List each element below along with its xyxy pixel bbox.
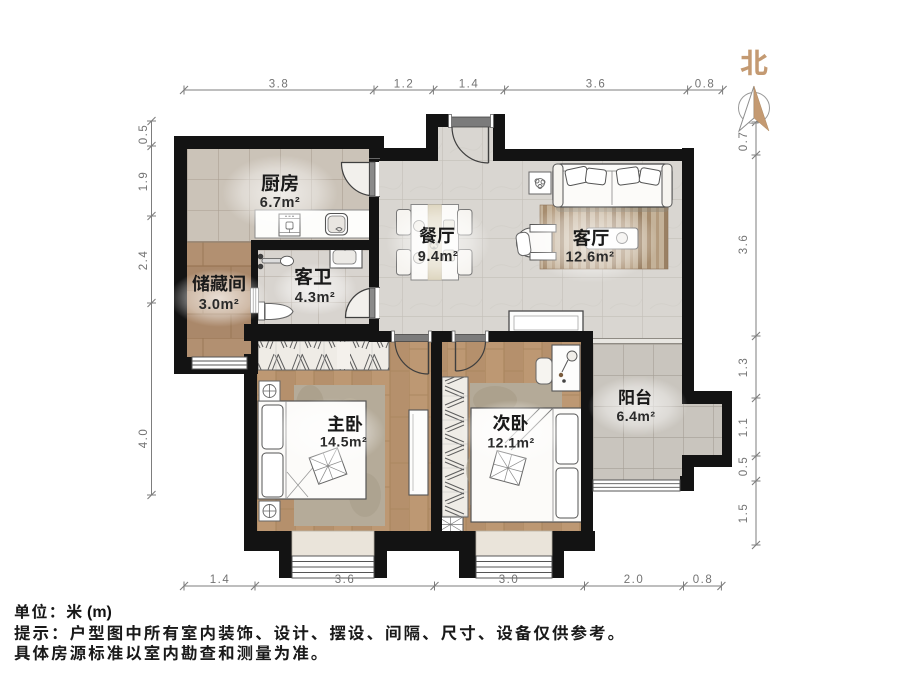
svg-text:3.0: 3.0: [499, 574, 520, 586]
svg-text:12.1m²: 12.1m²: [487, 435, 534, 451]
svg-text:1.3: 1.3: [738, 357, 750, 378]
svg-text:3.8: 3.8: [269, 79, 290, 91]
svg-text:1.4: 1.4: [210, 574, 231, 586]
svg-text:4.3m²: 4.3m²: [295, 290, 335, 306]
svg-text:2.0: 2.0: [624, 574, 645, 586]
svg-text:6.7m²: 6.7m²: [260, 195, 300, 211]
svg-text:0.5: 0.5: [138, 124, 150, 145]
svg-text:12.6m²: 12.6m²: [566, 250, 615, 266]
svg-text:0.7: 0.7: [738, 131, 750, 152]
svg-text:0.5: 0.5: [738, 456, 750, 477]
svg-text:1.9: 1.9: [138, 171, 150, 192]
svg-text:0.8: 0.8: [695, 79, 716, 91]
svg-text:(m): (m): [87, 604, 112, 621]
svg-text:1.1: 1.1: [738, 417, 750, 438]
svg-text:1.4: 1.4: [459, 79, 480, 91]
svg-text:3.0m²: 3.0m²: [199, 297, 239, 313]
svg-text:3.6: 3.6: [738, 234, 750, 255]
svg-text:3.6: 3.6: [586, 79, 607, 91]
svg-text:3.6: 3.6: [335, 574, 356, 586]
svg-text:2.4: 2.4: [138, 250, 150, 271]
svg-text:1.5: 1.5: [738, 503, 750, 524]
svg-text:9.4m²: 9.4m²: [418, 249, 458, 265]
svg-text:14.5m²: 14.5m²: [320, 434, 367, 450]
svg-text:1.2: 1.2: [394, 79, 415, 91]
svg-text:4.0: 4.0: [138, 428, 150, 449]
svg-text:0.8: 0.8: [693, 574, 714, 586]
svg-text:6.4m²: 6.4m²: [616, 408, 655, 424]
